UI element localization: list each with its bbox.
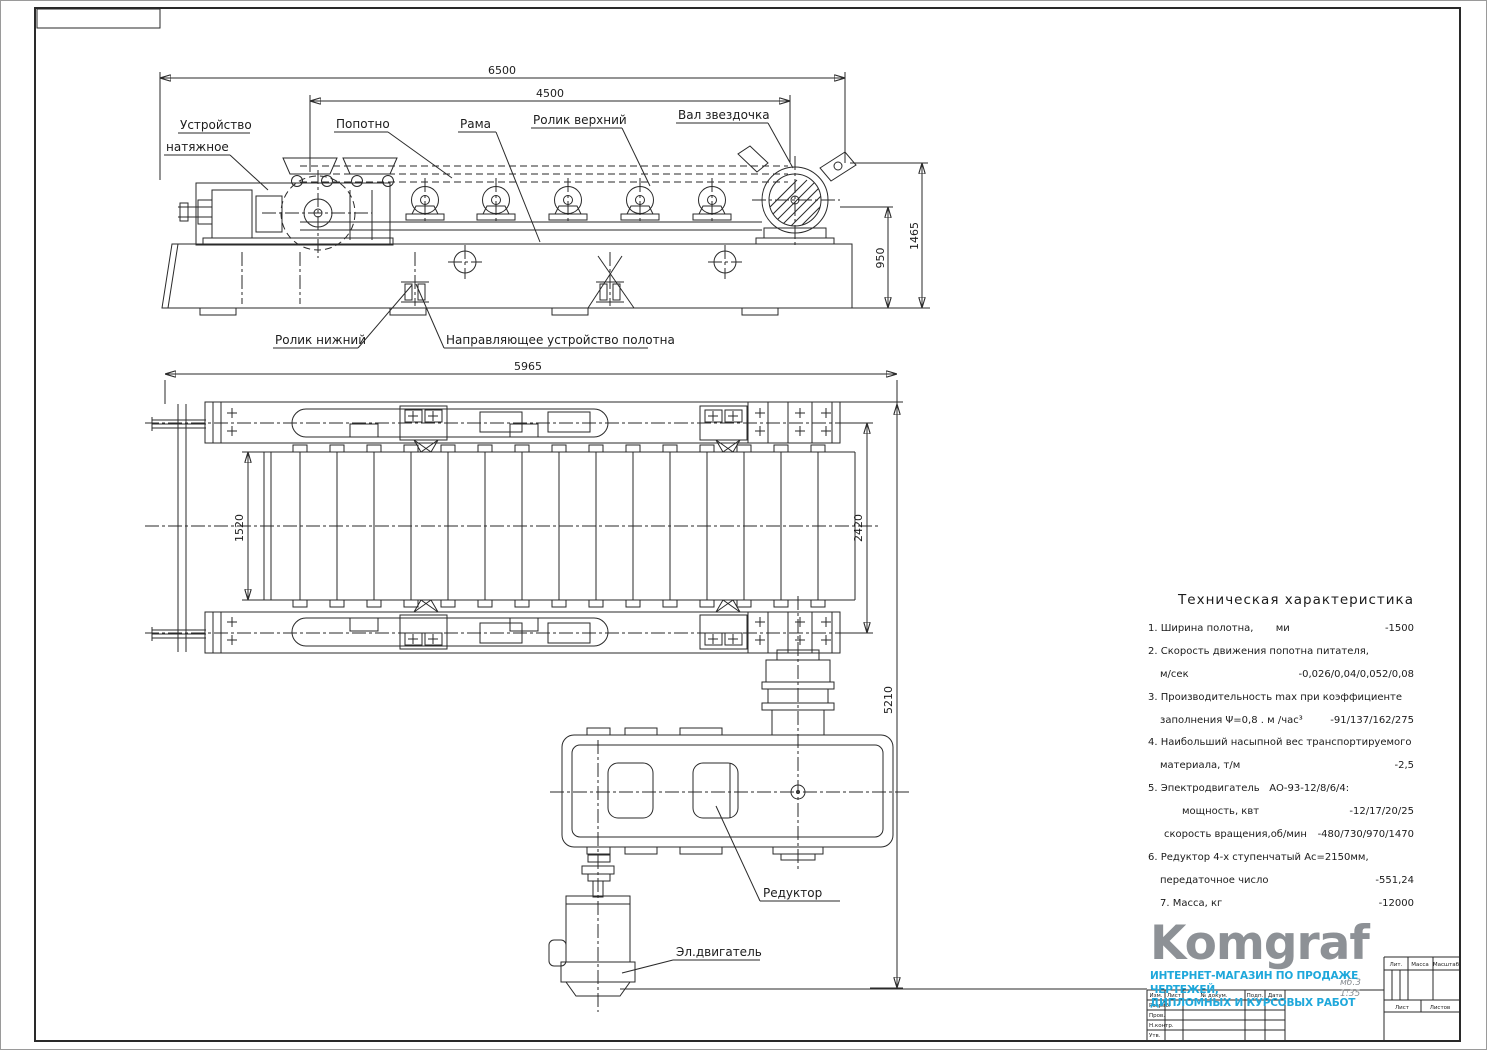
tech-row-value: -12000 [1379, 897, 1414, 910]
belt-tab [737, 445, 751, 452]
tech-row-label: м/сек [1148, 668, 1189, 681]
tech-row-value: -0,026/0,04/0,052/0,08 [1298, 668, 1414, 681]
tech-row: 3. Производительность max при коэффициен… [1148, 691, 1414, 714]
belt-tab [737, 600, 751, 607]
tech-row: 1. Ширина полотна, ми-1500 [1148, 622, 1414, 645]
tech-row: скорость вращения,об/мин-480/730/970/147… [1148, 828, 1414, 851]
hatch-line [795, 180, 847, 232]
tech-row-label: 5. Эпектродвигатель АО-93-12/8/6/4: [1148, 782, 1349, 795]
tech-row-label: 1. Ширина полотна, ми [1148, 622, 1290, 635]
belt-tab [515, 600, 529, 607]
tech-row-label: 4. Наибольший насыпной вес транспортируе… [1148, 736, 1412, 749]
stamp-role-label: Пров. [1149, 1013, 1165, 1019]
title-block-listov: Листов [1430, 1005, 1451, 1011]
belt-tab [404, 600, 418, 607]
hatch-line [775, 180, 827, 232]
hatch-line [745, 180, 797, 232]
dim-950: 950 [874, 248, 887, 269]
dim-4500: 4500 [536, 87, 564, 100]
belt-tab [774, 445, 788, 452]
dim-overall-length: 6500 [160, 64, 845, 180]
label-reducer: Редуктор [763, 886, 822, 900]
tech-title: Техническая характеристика [1148, 594, 1414, 607]
belt-tab [700, 445, 714, 452]
stamp-note: мб.3 1:35 [1340, 978, 1361, 1000]
tech-row-value: -551,24 [1375, 874, 1414, 887]
drive-unit: Редуктор Эл.двигатель [549, 650, 1147, 1012]
belt-tab [552, 600, 566, 607]
label-sprocket-shaft: Вал звездочка [678, 108, 770, 122]
dim-belt-width: 1520 [233, 452, 262, 600]
dim-2420: 2420 [852, 514, 865, 542]
stamp-note-line1: мб.3 [1340, 978, 1361, 989]
tech-row-label: мощность, квт [1148, 805, 1259, 818]
belt-tab [478, 600, 492, 607]
tech-row-value: -480/730/970/1470 [1318, 828, 1414, 841]
plan-bottom-rail [205, 600, 840, 653]
tech-row-label: 3. Производительность max при коэффициен… [1148, 691, 1402, 704]
dim-1465: 1465 [908, 222, 921, 250]
belt-tab [330, 445, 344, 452]
belt-tab [441, 600, 455, 607]
belt-tab [367, 600, 381, 607]
belt-tab [478, 445, 492, 452]
dim-5210: 5210 [882, 686, 895, 714]
hatch-line [785, 180, 837, 232]
title-block-massa: Масса [1411, 962, 1429, 968]
tech-row-label: 6. Редуктор 4-х ступенчатый Ас=2150мм, [1148, 851, 1369, 864]
dim-6500: 6500 [488, 64, 516, 77]
tension-device [178, 170, 393, 258]
belt-tab [811, 600, 825, 607]
belt-tab [663, 600, 677, 607]
dim-5965: 5965 [514, 360, 542, 373]
belt-guide-device [401, 252, 634, 308]
belt-tab [293, 600, 307, 607]
tech-row-value: -1500 [1385, 622, 1414, 635]
hatch-line [805, 180, 857, 232]
electric-motor [549, 896, 635, 996]
belt-tab [589, 600, 603, 607]
label-frame: Рама [460, 117, 491, 131]
belt-tab [774, 600, 788, 607]
title-block-lit: Лит. [1390, 962, 1403, 968]
belt-tab [330, 600, 344, 607]
stamp-note-line2: 1:35 [1340, 989, 1361, 1000]
label-roller-lower: Ролик нижний [275, 333, 366, 347]
belt-tab [552, 445, 566, 452]
tech-row: материала, т/м-2,5 [1148, 759, 1414, 782]
tech-row-value: -2,5 [1394, 759, 1414, 772]
drawing-sheet: 6500 4500 Устройство натяжное Попотно Ра… [0, 0, 1487, 1050]
dim-plan-total: 5210 [840, 402, 903, 988]
frame-trough [162, 244, 852, 315]
belt-tab [441, 445, 455, 452]
tech-row: заполнения Ψ=0,8 . м /час³-91/137/162/27… [1148, 714, 1414, 737]
technical-characteristics: Техническая характеристика 1. Ширина пол… [1148, 594, 1414, 920]
upper-rollers [406, 178, 731, 224]
gearbox [550, 728, 910, 1012]
stamp-role-label: Утв. [1149, 1033, 1161, 1039]
tech-row: 5. Эпектродвигатель АО-93-12/8/6/4: [1148, 782, 1414, 805]
tech-row: 6. Редуктор 4-х ступенчатый Ас=2150мм, [1148, 851, 1414, 874]
belt-tab [700, 600, 714, 607]
side-view: 6500 4500 Устройство натяжное Попотно Ра… [160, 64, 930, 348]
tech-row-value: -91/137/162/275 [1330, 714, 1414, 727]
title-block-masshtab: Масштаб [1433, 962, 1460, 968]
dim-total-height: 1465 [850, 163, 928, 308]
label-belt-guide: Направляющее устройство полотна [446, 333, 675, 347]
belt-tab [663, 445, 677, 452]
label-tension-device-1: Устройство [180, 118, 252, 132]
tech-row-label: 2. Скорость движения попотна питателя, [1148, 645, 1369, 658]
dim-plan-length: 5965 [165, 360, 897, 404]
tech-row: 4. Наибольший насыпной вес транспортируе… [1148, 736, 1414, 759]
tech-row: 2. Скорость движения попотна питателя, [1148, 645, 1414, 668]
belt-tab [367, 445, 381, 452]
label-tension-device-2: натяжное [166, 140, 229, 154]
komgraf-wordmark: Komgraf [1150, 918, 1390, 970]
tech-row: м/сек-0,026/0,04/0,052/0,08 [1148, 668, 1414, 691]
label-roller-upper: Ролик верхний [533, 113, 627, 127]
sprocket [738, 146, 867, 248]
belt-tab [515, 445, 529, 452]
belt-tab [811, 445, 825, 452]
dim-1520: 1520 [233, 514, 246, 542]
label-motor: Эл.двигатель [676, 945, 762, 959]
belt-tab [404, 445, 418, 452]
tech-row-label: передаточное число [1148, 874, 1269, 887]
belt-tab [626, 600, 640, 607]
tech-row-label: 7. Масса, кг [1148, 897, 1222, 910]
tech-row-label: заполнения Ψ=0,8 . м /час³ [1148, 714, 1303, 727]
belt-tab [293, 445, 307, 452]
hatch-line [815, 180, 867, 232]
belt-tab [626, 445, 640, 452]
tech-row-label: материала, т/м [1148, 759, 1240, 772]
tech-row: мощность, квт-12/17/20/25 [1148, 805, 1414, 828]
title-block-list: Лист [1395, 1005, 1410, 1011]
belt-tab [589, 445, 603, 452]
tech-row: передаточное число-551,24 [1148, 874, 1414, 897]
tech-row-value: -12/17/20/25 [1349, 805, 1414, 818]
dim-rail-span: 2420 [843, 423, 873, 633]
label-belt: Попотно [336, 117, 390, 131]
tech-row-label: скорость вращения,об/мин [1148, 828, 1307, 841]
stamp-role-label: Н.контр. [1149, 1023, 1174, 1029]
